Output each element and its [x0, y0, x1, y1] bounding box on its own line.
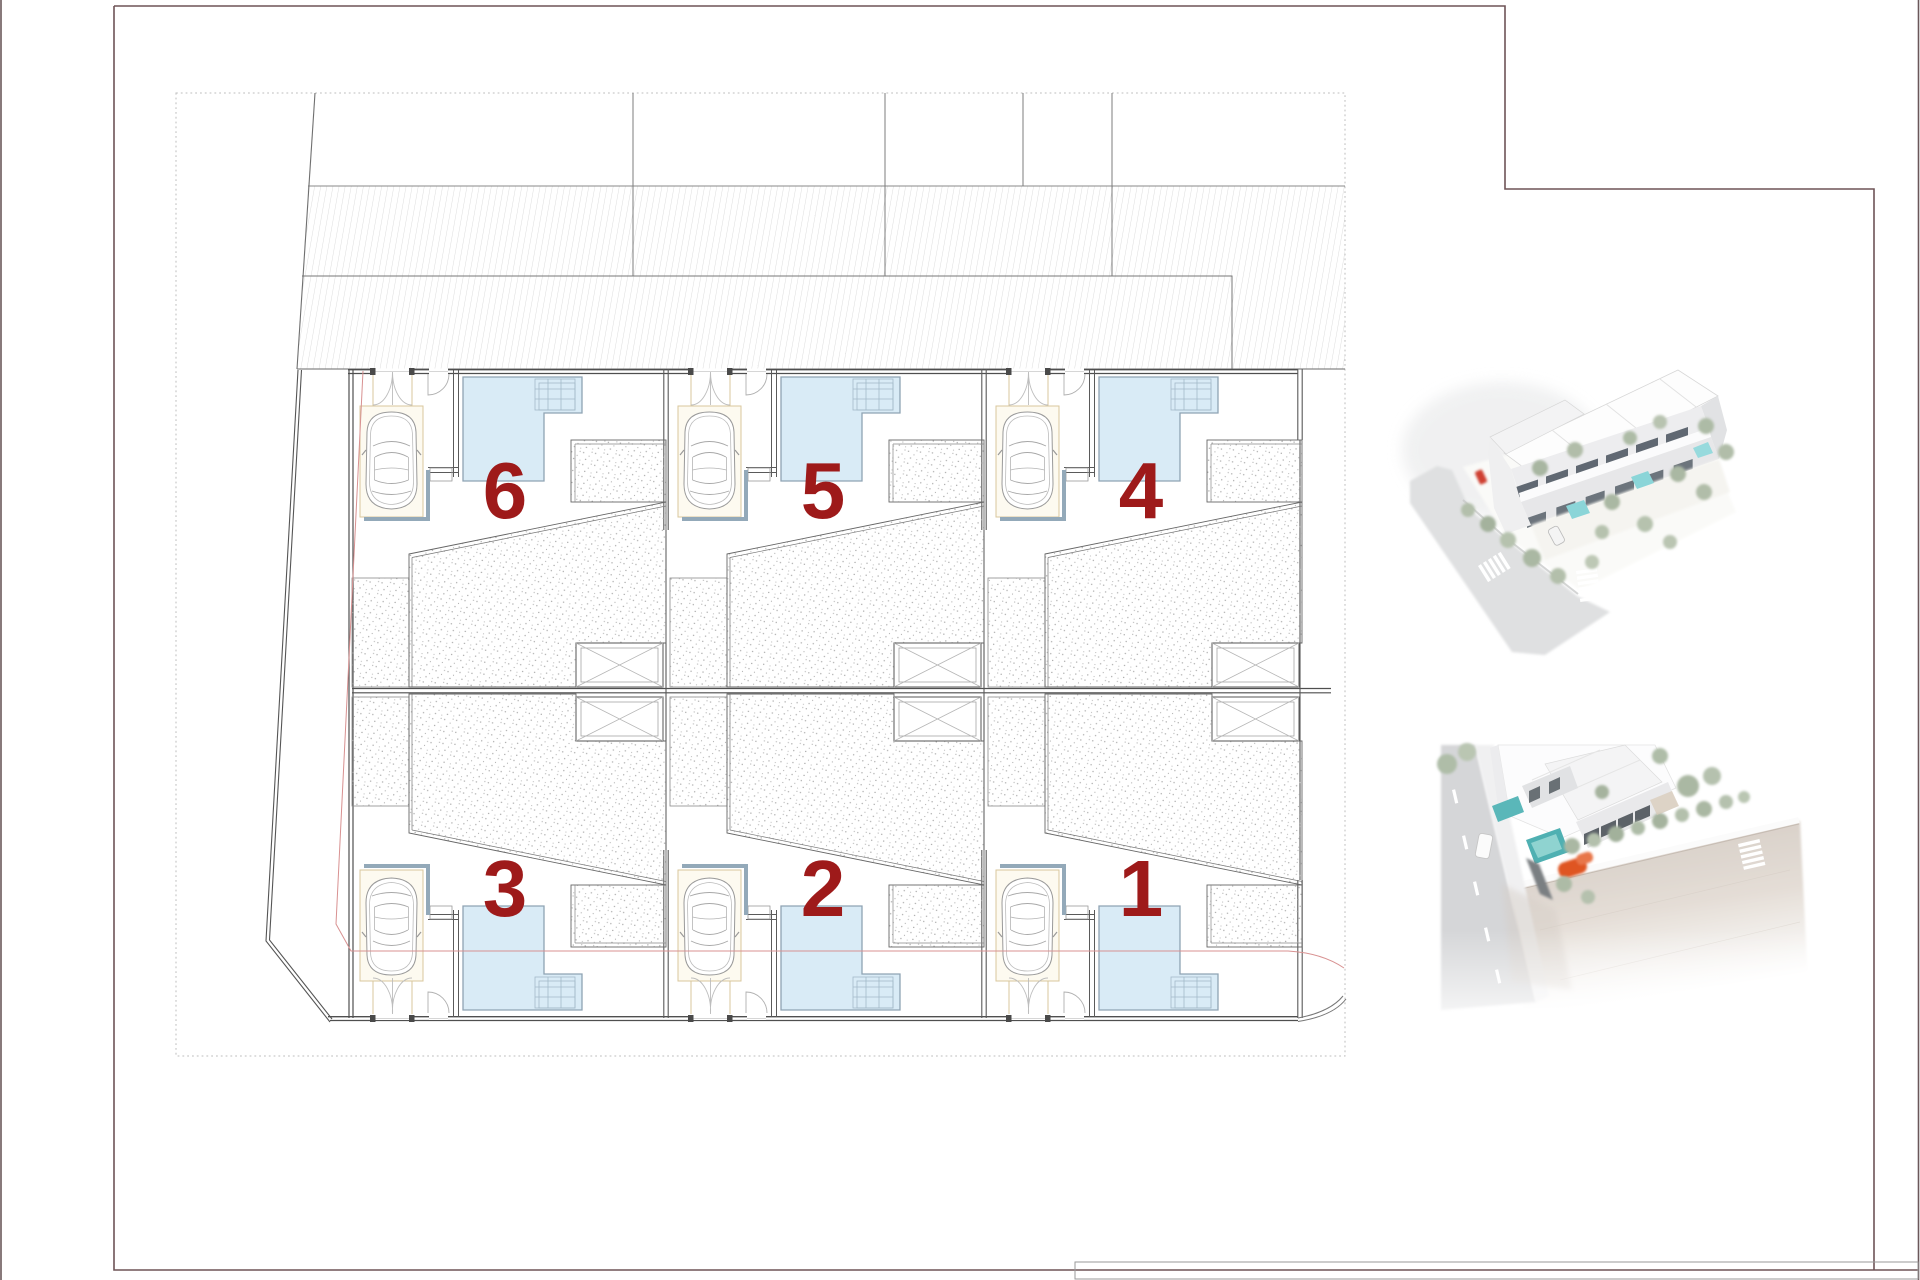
- svg-text:1: 1: [1119, 844, 1164, 933]
- svg-text:2: 2: [801, 844, 846, 933]
- svg-text:5: 5: [801, 446, 846, 535]
- svg-text:4: 4: [1119, 446, 1164, 535]
- svg-text:6: 6: [483, 446, 528, 535]
- svg-text:3: 3: [483, 844, 528, 933]
